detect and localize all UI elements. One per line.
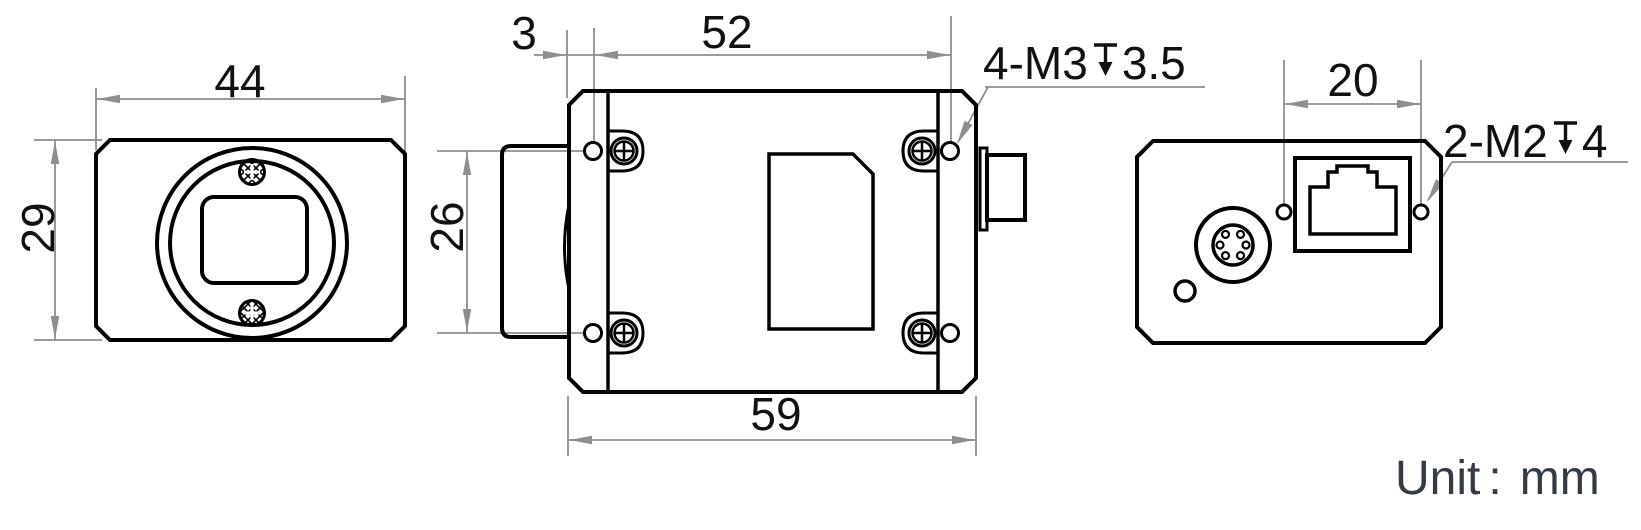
- dimension-arrow: [1397, 100, 1420, 108]
- back-body-outline: [1137, 141, 1441, 343]
- lens-lock-screw-top: [240, 160, 265, 185]
- front-height-dim-label: 29: [15, 202, 61, 253]
- connector-pin: [1222, 231, 1229, 238]
- dimension-arrow: [463, 152, 471, 175]
- front-view: [96, 140, 405, 340]
- connector-pin: [1237, 231, 1244, 238]
- back-view: [1137, 141, 1441, 343]
- unit-colon: :: [1488, 452, 1501, 505]
- dimension-arrow: [952, 436, 975, 444]
- product-label: [769, 154, 873, 329]
- top-hole-pitch-dim-label: 52: [701, 9, 752, 55]
- camera-dimension-drawing: 44 29 3 52 26 59 20 4-M3 3.5 2-M2 4 Unit…: [0, 0, 1641, 530]
- lens-lock-screw-bottom: [240, 301, 265, 326]
- ethernet-port: [1295, 158, 1410, 251]
- connector-pin: [1243, 242, 1250, 249]
- thread-note-prefix: 2-M2: [1443, 118, 1548, 164]
- depth-symbol-icon: [1092, 41, 1119, 77]
- rj45-socket: [1310, 166, 1396, 234]
- lens-barrel: [502, 146, 569, 337]
- dimension-arrow: [51, 141, 59, 164]
- assembly-screw: [611, 138, 637, 164]
- thread-note-depth: 3.5: [1122, 40, 1186, 86]
- m2-mounting-hole-right: [1414, 205, 1428, 219]
- assembly-screw: [611, 320, 637, 346]
- top-offset-dim-label: 3: [511, 10, 537, 56]
- m2-mounting-hole-left: [1277, 205, 1291, 219]
- power-io-connector: [1196, 208, 1270, 282]
- thread-note-prefix: 4-M3: [983, 40, 1088, 86]
- power-connector-inner: [1213, 225, 1253, 265]
- dimension-arrow: [569, 436, 592, 444]
- dimension-arrow: [51, 316, 59, 339]
- m3-mounting-hole: [585, 143, 602, 160]
- front-width-dim-label: 44: [214, 58, 265, 104]
- m3-mounting-hole: [942, 325, 959, 342]
- back-thread-leader: [1427, 162, 1628, 202]
- leader-arrow: [957, 121, 972, 144]
- sensor-window: [202, 197, 307, 283]
- assembly-screw: [909, 320, 935, 346]
- io-connector: [987, 155, 1025, 220]
- top-thread-leader: [957, 87, 1205, 144]
- unit-label: Unit: [1395, 452, 1480, 505]
- dimension-arrow: [595, 51, 618, 59]
- unit-note: Unit:mm: [1395, 455, 1600, 503]
- status-led: [1175, 281, 1195, 301]
- top-view: [502, 91, 1025, 392]
- dimension-arrow: [381, 95, 404, 103]
- dimension-arrow: [543, 51, 566, 59]
- thread-note-depth: 4: [1582, 118, 1608, 164]
- power-connector-outer: [1196, 208, 1270, 282]
- depth-symbol-icon: [1552, 119, 1579, 155]
- top-length-dim-label: 59: [750, 391, 801, 437]
- dimension-arrow: [463, 309, 471, 332]
- back-thread-note: 2-M2 4: [1443, 118, 1607, 164]
- top-width-pitch-dim-label: 26: [424, 201, 470, 252]
- back-hole-pitch-dim-label: 20: [1327, 57, 1378, 103]
- m3-mounting-hole: [942, 143, 959, 160]
- connector-pin: [1217, 242, 1224, 249]
- connector-pin: [1237, 252, 1244, 259]
- connector-pin: [1222, 252, 1229, 259]
- m3-mounting-hole: [585, 325, 602, 342]
- assembly-screw: [909, 138, 935, 164]
- unit-value: mm: [1520, 452, 1600, 505]
- dimension-arrow: [927, 51, 950, 59]
- ethernet-port-bezel: [1295, 158, 1410, 251]
- dimension-arrow: [1285, 100, 1308, 108]
- top-body-outline: [569, 91, 976, 392]
- dimension-arrow: [97, 95, 120, 103]
- top-thread-note: 4-M3 3.5: [983, 40, 1186, 86]
